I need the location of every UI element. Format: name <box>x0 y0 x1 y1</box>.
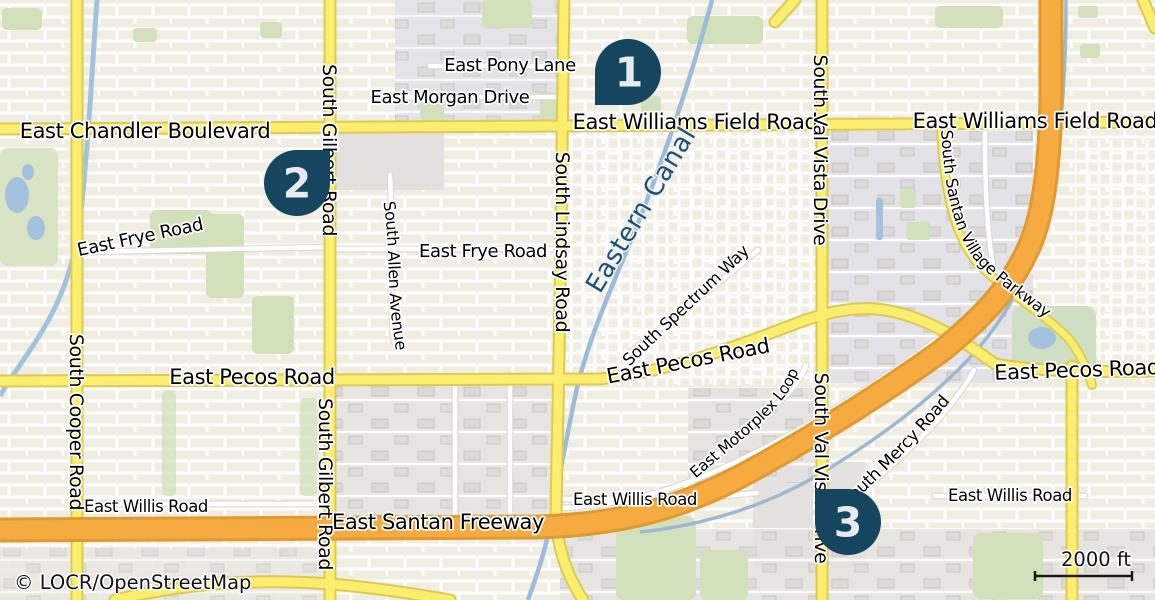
marker-2-number: 2 <box>283 160 312 208</box>
road-label-pony: East Pony Lane <box>444 55 576 76</box>
road-label-val-vista-north: South Val Vista Drive <box>809 55 831 246</box>
marker-2[interactable]: 2 <box>264 150 330 216</box>
marker-3[interactable]: 3 <box>815 489 881 555</box>
road-label-willis-west: East Willis Road <box>84 497 208 516</box>
road-label-willis-center: East Willis Road <box>573 490 697 509</box>
map-svg: East Chandler Boulevard East Williams Fi… <box>0 0 1155 600</box>
road-label-morgan: East Morgan Drive <box>371 87 530 108</box>
marker-3-number: 3 <box>834 499 863 547</box>
road-label-pecos-west: East Pecos Road <box>169 365 335 389</box>
road-label-cooper: South Cooper Road <box>65 334 87 510</box>
map-attribution: © LOCR/OpenStreetMap <box>14 571 251 594</box>
marker-1[interactable]: 1 <box>595 39 661 105</box>
road-label-lindsay: South Lindsay Road <box>551 152 573 333</box>
map-canvas[interactable]: East Chandler Boulevard East Williams Fi… <box>0 0 1155 600</box>
road-label-willis-east: East Willis Road <box>948 486 1072 505</box>
road-label-frye-east: East Frye Road <box>419 241 547 262</box>
road-label-chandler: East Chandler Boulevard <box>20 119 271 143</box>
scale-bar-label: 2000 ft <box>1061 548 1131 571</box>
road-label-santan-freeway: East Santan Freeway <box>332 510 544 534</box>
road-label-williams-center: East Williams Field Road <box>573 110 818 134</box>
park-pond <box>1028 327 1056 349</box>
marker-1-number: 1 <box>615 49 644 97</box>
road-label-williams-east: East Williams Field Road <box>913 109 1155 133</box>
road-label-gilbert-south: South Gilbert Road <box>314 398 336 570</box>
